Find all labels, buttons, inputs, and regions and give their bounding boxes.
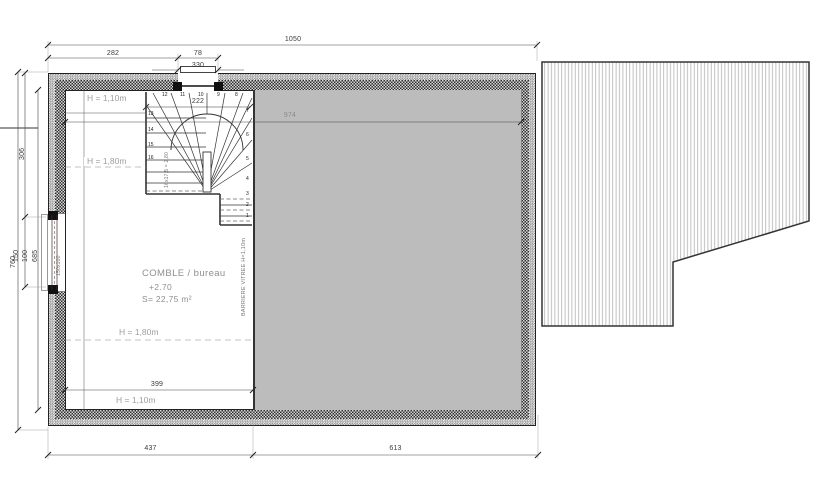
- stair-linework: [143, 92, 253, 225]
- stair-step-number: 16: [148, 156, 154, 161]
- room-level: +2.70: [149, 282, 172, 292]
- dim-bottom-left: 437: [48, 445, 253, 453]
- dim-top-left: 282: [48, 50, 178, 58]
- stair-step-number: 3: [246, 192, 249, 197]
- stair-step-number: 5: [246, 157, 249, 162]
- height-label-bottom: H = 1,10m: [116, 396, 155, 405]
- height-label-lower: H = 1,80m: [116, 328, 161, 337]
- dim-window-sill: 100: [22, 250, 30, 262]
- stair-annotation: 16x17,5 = 2,80: [164, 152, 170, 188]
- stair-step-number: 11: [180, 93, 185, 98]
- stair-step-number: 15: [148, 143, 154, 148]
- barrier-annotation: BARRIERE VITREE H=1,10m: [241, 238, 247, 316]
- dim-top-opening: 78: [178, 50, 218, 58]
- stair-step-number: 1: [246, 214, 249, 219]
- room-name: COMBLE / bureau: [142, 268, 226, 279]
- dim-top-window: 330: [178, 62, 218, 70]
- stair-step-number: 14: [148, 128, 154, 133]
- stair-step-number: 6: [246, 133, 249, 138]
- window-annotation: 150x100: [56, 255, 62, 276]
- deck-terrace: [542, 62, 809, 326]
- dim-interior-height: 685: [32, 250, 40, 262]
- stair-step-number: 9: [217, 93, 220, 98]
- stair-step-number: 8: [235, 93, 238, 98]
- dim-stair-width: 222: [178, 98, 218, 106]
- plan-linework: [0, 0, 822, 497]
- dim-bottom-right: 613: [253, 445, 538, 453]
- stair-step-number: 7: [246, 109, 249, 114]
- stair-step-number: 13: [148, 112, 154, 117]
- floor-plan: 1050 282 78 330 760 306 150 100 685 974 …: [0, 0, 822, 497]
- dim-room-width: 399: [127, 381, 187, 389]
- opening-details: [48, 82, 223, 294]
- dim-left-upper: 306: [19, 148, 27, 160]
- stair-step-number: 2: [246, 203, 249, 208]
- height-label-top: H = 1,10m: [87, 94, 126, 103]
- dim-top-total: 1050: [48, 36, 538, 44]
- stair-step-number: 12: [162, 93, 168, 98]
- dim-interior-width: 974: [260, 112, 320, 120]
- stair-step-number: 10: [198, 93, 204, 98]
- stair-step-number: 4: [246, 177, 249, 182]
- room-area: S= 22,75 m²: [142, 294, 192, 304]
- dimension-lines: [15, 41, 541, 459]
- height-label-upper: H = 1,80m: [84, 157, 129, 166]
- dim-window-height: 150: [13, 250, 21, 262]
